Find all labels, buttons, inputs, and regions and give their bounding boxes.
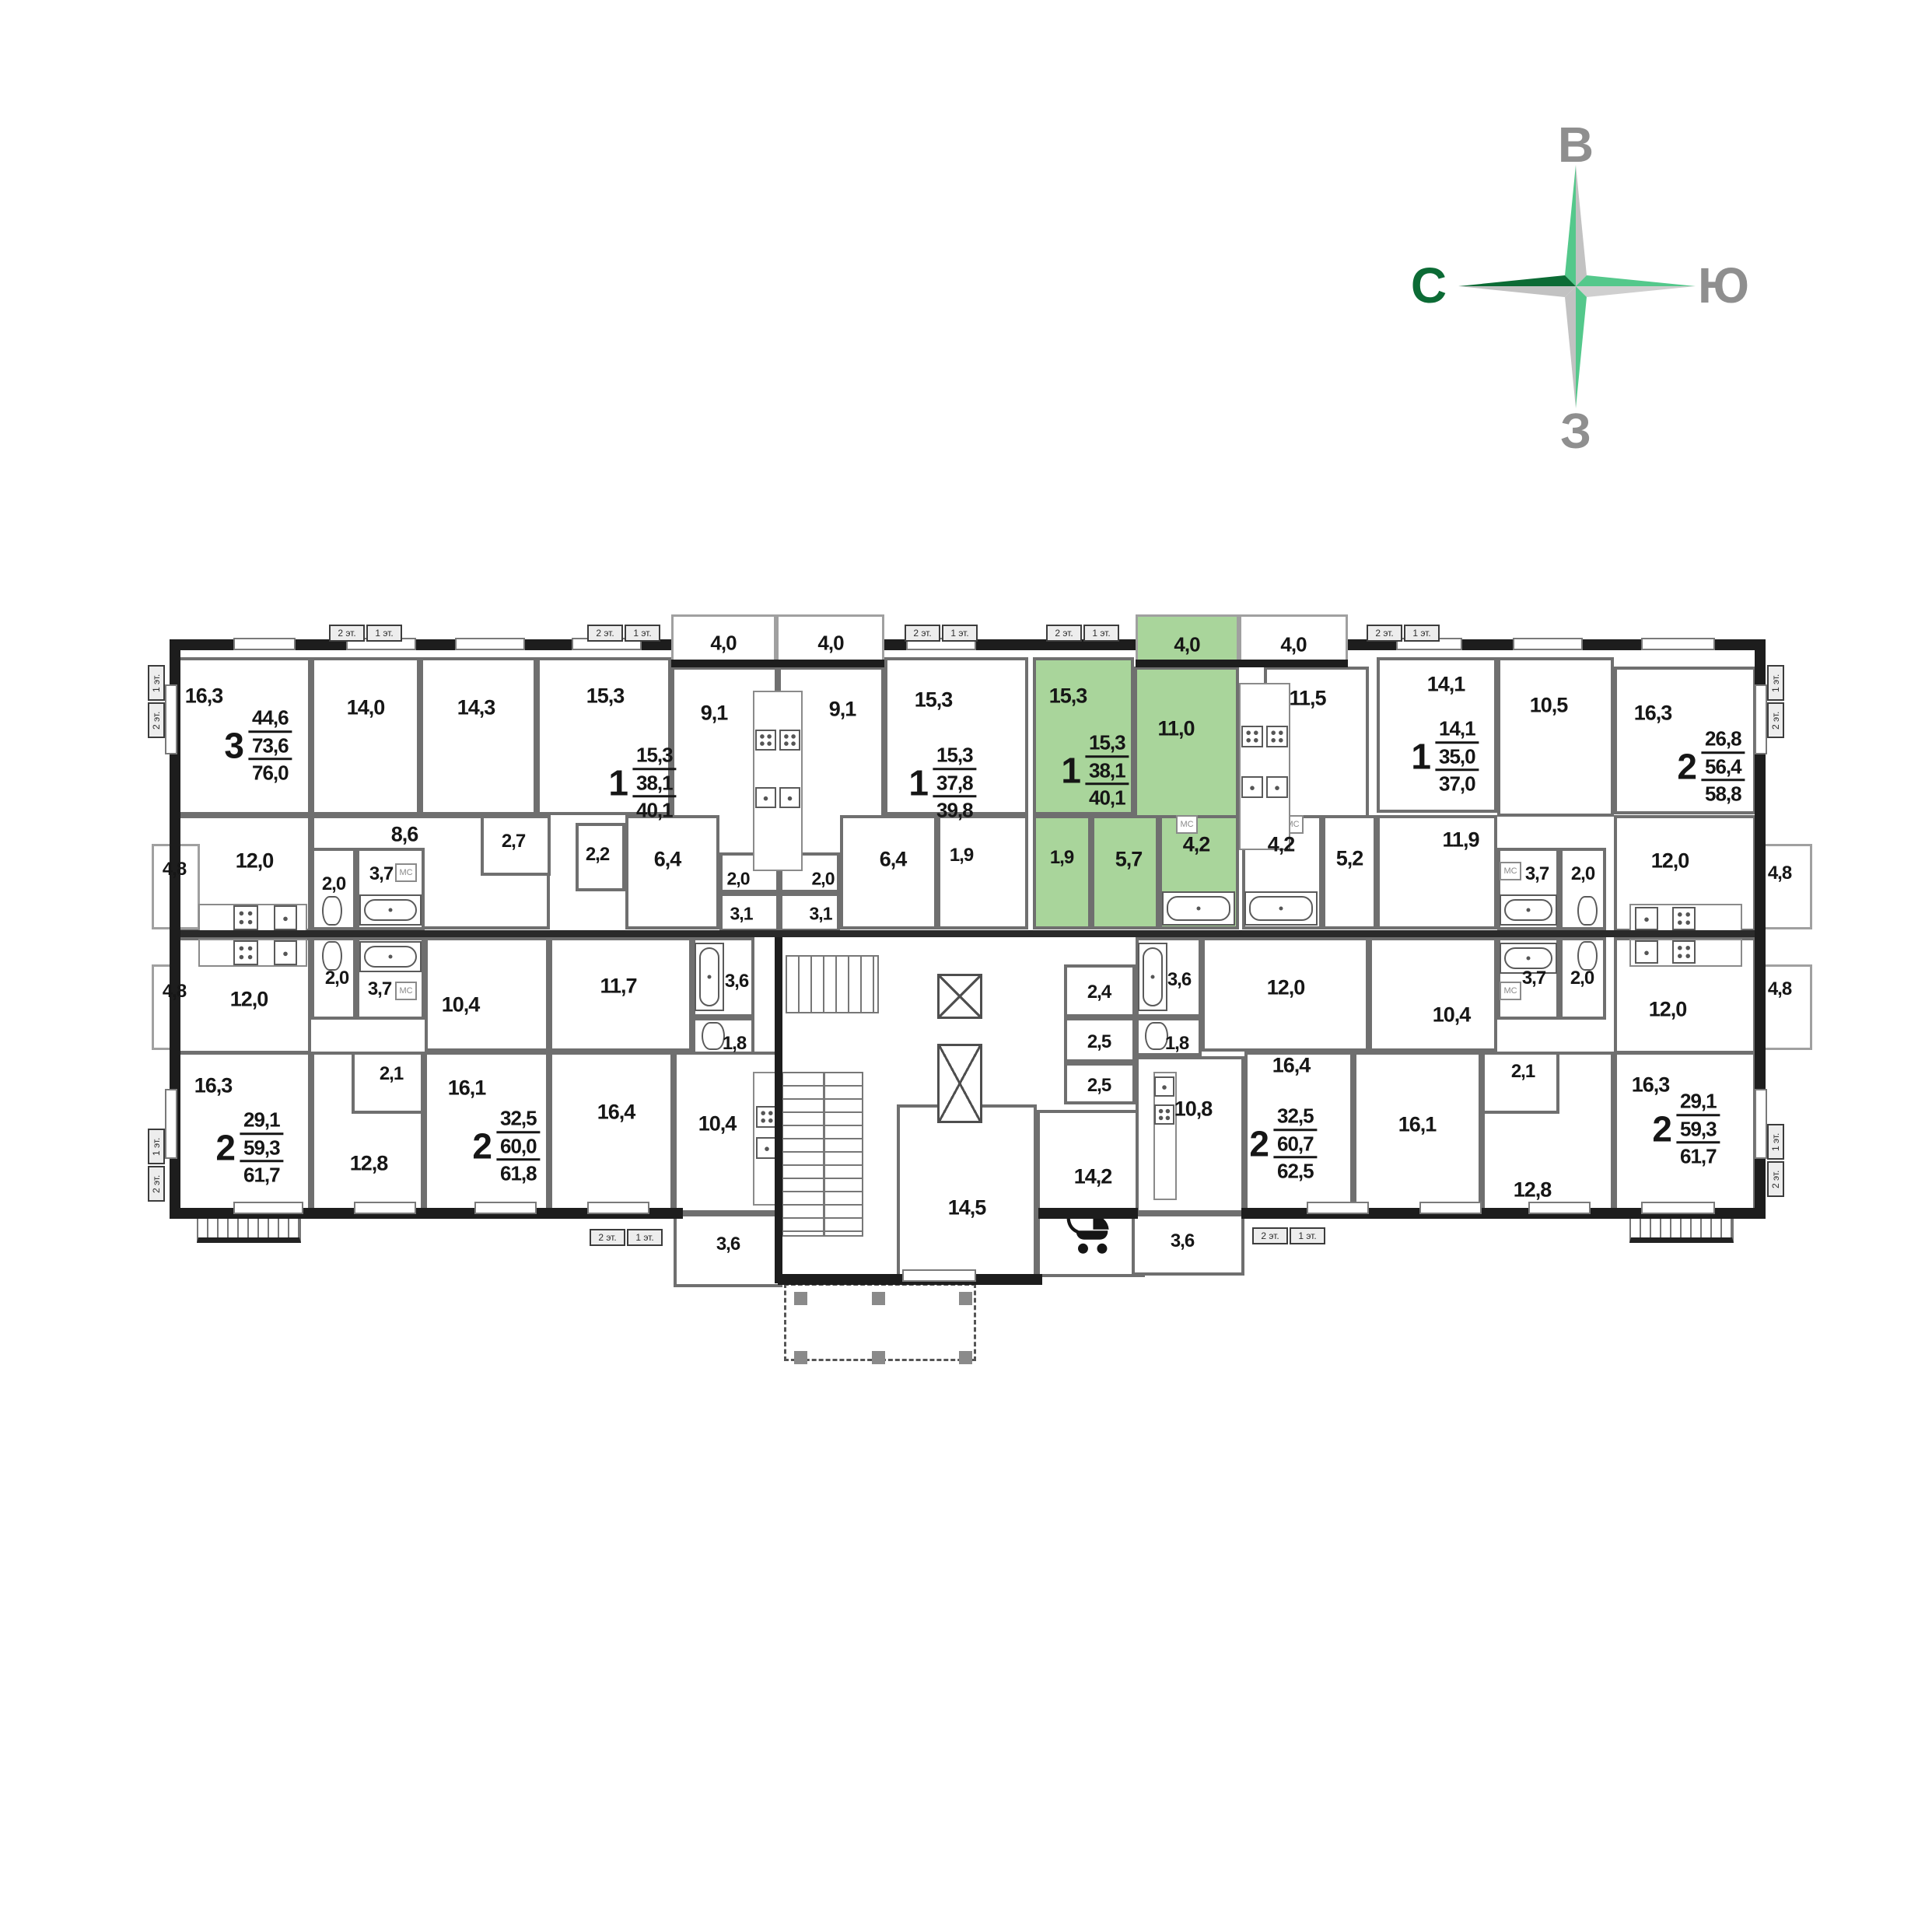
apartment-area-value: 29,1 <box>240 1107 284 1135</box>
storage-box-mc: МС <box>1500 862 1521 880</box>
sink-icon <box>274 940 297 965</box>
staircase <box>786 955 879 1013</box>
room <box>1497 657 1614 817</box>
window <box>1641 638 1715 650</box>
toilet-icon <box>322 896 342 926</box>
room-area-label: 5,2 <box>1336 847 1363 871</box>
apartment-area-value: 15,3 <box>1085 730 1129 758</box>
room-area-label: 6,4 <box>654 848 681 872</box>
room-area-label: 1,9 <box>950 845 973 866</box>
apartment-area-value: 39,8 <box>933 797 977 823</box>
room-area-label: 10,8 <box>1174 1097 1213 1122</box>
porch-column <box>872 1351 885 1364</box>
room-highlighted[interactable] <box>1033 815 1091 929</box>
room-area-label: 11,0 <box>1157 717 1194 741</box>
room-area-label: 11,5 <box>1289 687 1325 711</box>
room-area-label: 2,5 <box>1087 1031 1111 1053</box>
apartment-rooms-count: 2 <box>1677 745 1696 787</box>
floor-tag[interactable]: 1 эт. <box>627 1229 663 1246</box>
room-area-label: 3,7 <box>1525 863 1549 885</box>
room <box>897 1104 1037 1279</box>
floor-tag[interactable]: 2 эт. <box>590 1229 625 1246</box>
apartment-areas: 32,560,061,8 <box>496 1105 541 1186</box>
porch-column <box>959 1292 972 1305</box>
window <box>233 1202 303 1214</box>
apartment-rooms-count: 1 <box>908 761 928 803</box>
room-area-label: 1,8 <box>723 1033 746 1055</box>
room-area-label: 2,0 <box>325 968 348 989</box>
apartment-area-value: 40,1 <box>1085 785 1129 810</box>
floor-tag[interactable]: 2 эт. <box>1767 1161 1784 1197</box>
storage-box-mc: МС <box>395 863 417 882</box>
apartment-rooms-count: 1 <box>1411 735 1430 777</box>
floor-tag[interactable]: 2 эт. <box>587 625 623 642</box>
stove-icon <box>1241 726 1263 747</box>
room-area-label: 10,4 <box>442 993 480 1017</box>
room-area-label: 2,1 <box>1511 1061 1535 1083</box>
floorplan-canvas: В Ю З С 4,04,04,04,016,314,014,315,39,19… <box>0 0 1932 1932</box>
sink-icon <box>779 787 800 808</box>
room-area-label: 12,0 <box>1267 976 1305 1000</box>
apartment-area-value: 56,4 <box>1701 754 1745 782</box>
room-area-label: 3,6 <box>716 1234 740 1255</box>
room-area-label: 14,1 <box>1427 673 1465 697</box>
stove-icon <box>1154 1104 1174 1125</box>
apartment-area-value: 38,1 <box>632 770 677 798</box>
room-area-label: 3,1 <box>730 904 753 925</box>
apartment-areas: 15,337,839,8 <box>933 742 977 823</box>
apartment-label[interactable]: 114,135,037,0 <box>1411 716 1479 796</box>
apartment-area-value: 15,3 <box>632 742 677 770</box>
room-area-label: 2,7 <box>502 831 525 852</box>
stove-icon <box>233 905 258 930</box>
apartment-label[interactable]: 232,560,061,8 <box>472 1105 540 1186</box>
apartment-area-value: 38,1 <box>1085 758 1129 786</box>
room-area-label: 9,1 <box>701 702 728 726</box>
room <box>1322 815 1377 929</box>
room-area-label: 14,3 <box>457 696 495 720</box>
porch-column <box>794 1292 807 1305</box>
room-area-label: 3,6 <box>1167 969 1191 991</box>
apartment-area-value: 15,3 <box>933 742 977 770</box>
room-area-label: 1,9 <box>1050 847 1073 869</box>
room <box>1377 815 1497 929</box>
room-area-label: 4,2 <box>1268 833 1295 857</box>
room <box>311 657 420 815</box>
apartment-area-value: 59,3 <box>1676 1116 1720 1144</box>
toilet-icon <box>1577 941 1598 971</box>
apartment-area-value: 29,1 <box>1676 1088 1720 1116</box>
apartment-area-value: 59,3 <box>240 1135 284 1163</box>
room-area-label: 10,5 <box>1530 694 1568 718</box>
elevator-shaft <box>937 1044 982 1123</box>
room-area-label: 2,5 <box>1087 1075 1111 1097</box>
room-area-label: 12,8 <box>350 1152 388 1176</box>
apartment-areas: 14,135,037,0 <box>1435 716 1479 796</box>
apartment-label[interactable]: 344,673,676,0 <box>224 705 292 786</box>
room-area-label: 6,4 <box>880 848 907 872</box>
room-area-label: 15,3 <box>586 684 625 709</box>
room-area-label: 2,0 <box>322 873 345 895</box>
floor-tag[interactable]: 1 эт. <box>148 1129 165 1164</box>
stove-icon <box>233 940 258 965</box>
apartment-label[interactable]: 229,159,361,7 <box>1652 1088 1720 1169</box>
stove-icon <box>755 730 776 751</box>
apartment-area-value: 14,1 <box>1435 716 1479 744</box>
window <box>1755 1089 1767 1159</box>
room-highlighted[interactable] <box>1091 815 1159 929</box>
floor-tag[interactable]: 2 эт. <box>1767 702 1784 738</box>
floor-tag[interactable]: 2 эт. <box>329 625 365 642</box>
apartment-area-value: 62,5 <box>1273 1158 1318 1184</box>
apartment-rooms-count: 2 <box>472 1125 492 1167</box>
porch-column <box>872 1292 885 1305</box>
staircase <box>782 1072 863 1237</box>
toilet-icon <box>1577 896 1598 926</box>
window <box>1641 1202 1715 1214</box>
window <box>165 1089 177 1159</box>
room-area-label: 3,6 <box>725 971 748 992</box>
floor-tag[interactable]: 1 эт. <box>1767 665 1784 701</box>
room-area-label: 14,5 <box>948 1196 986 1220</box>
floor-tag[interactable]: 1 эт. <box>625 625 660 642</box>
room-area-label: 1,8 <box>1165 1033 1188 1055</box>
room-area-label: 10,4 <box>698 1112 737 1136</box>
room-area-label: 8,6 <box>391 823 418 847</box>
room-area-label: 4,2 <box>1183 833 1210 857</box>
room-area-label: 15,3 <box>915 688 953 712</box>
room-area-label: 4,0 <box>710 632 736 656</box>
bathtub-icon <box>1162 891 1235 926</box>
stove-icon <box>1672 907 1696 930</box>
room-area-label: 4,0 <box>817 632 843 656</box>
room <box>625 815 719 929</box>
sink-icon <box>1241 776 1263 798</box>
room-area-label: 16,3 <box>185 684 223 709</box>
window <box>1528 1202 1591 1214</box>
floor-tag[interactable]: 1 эт. <box>1404 625 1440 642</box>
compass-label-north: С <box>1411 257 1447 314</box>
room-area-label: 15,3 <box>1049 684 1087 709</box>
room-area-label: 11,9 <box>1442 828 1479 852</box>
sink-icon <box>755 787 776 808</box>
apartment-area-value: 61,8 <box>496 1160 541 1186</box>
apartment-area-value: 26,8 <box>1701 726 1745 754</box>
room-area-label: 4,8 <box>163 981 186 1003</box>
window <box>354 1202 416 1214</box>
room-area-label: 10,4 <box>1433 1003 1471 1027</box>
floor-tag[interactable]: 2 эт. <box>1367 625 1402 642</box>
wall <box>180 930 1755 937</box>
apartment-label[interactable]: 115,338,140,1 <box>1061 730 1129 810</box>
bathtub-icon <box>695 943 724 1011</box>
apartment-label[interactable]: 232,560,762,5 <box>1249 1103 1317 1184</box>
room-area-label: 3,7 <box>369 863 393 885</box>
bathtub-icon <box>1244 891 1318 926</box>
floor-tag[interactable]: 1 эт. <box>1767 1124 1784 1160</box>
apartment-areas: 29,159,361,7 <box>1676 1088 1720 1169</box>
room-area-label: 12,0 <box>1651 849 1689 873</box>
storage-box-mc: МС <box>395 982 417 1000</box>
room-area-label: 2,1 <box>380 1063 403 1085</box>
bathtub-icon <box>359 894 422 926</box>
floor-tag[interactable]: 2 эт. <box>148 1166 165 1202</box>
room-area-label: 16,3 <box>1634 702 1672 726</box>
apartment-area-value: 40,1 <box>632 797 677 823</box>
apartment-area-value: 44,6 <box>248 705 292 733</box>
compass-label-south: Ю <box>1698 257 1749 314</box>
apartment-areas: 32,560,762,5 <box>1273 1103 1318 1184</box>
apartment-label[interactable]: 115,337,839,8 <box>908 742 976 823</box>
window <box>474 1202 537 1214</box>
floor-tag[interactable]: 1 эт. <box>148 665 165 701</box>
toilet-icon <box>702 1022 725 1050</box>
window <box>1755 684 1767 754</box>
room-area-label: 14,2 <box>1074 1165 1112 1189</box>
room <box>1136 1056 1244 1213</box>
apartment-areas: 29,159,361,7 <box>240 1107 284 1188</box>
room-area-label: 16,1 <box>1398 1113 1437 1137</box>
floor-tag[interactable]: 1 эт. <box>1083 625 1119 642</box>
room-area-label: 2,0 <box>1571 863 1594 885</box>
apartment-areas: 44,673,676,0 <box>248 705 292 786</box>
room-area-label: 2,0 <box>727 869 750 890</box>
room <box>420 657 537 815</box>
room-area-label: 12,0 <box>1649 998 1687 1022</box>
window <box>1513 638 1583 650</box>
apartment-label[interactable]: 226,856,458,8 <box>1677 726 1745 807</box>
apartment-area-value: 61,7 <box>240 1162 284 1188</box>
kitchen-counter <box>753 691 803 871</box>
floor-tag[interactable]: 2 эт. <box>148 702 165 738</box>
room-area-label: 16,3 <box>194 1074 233 1098</box>
room-area-label: 4,0 <box>1280 633 1306 657</box>
room-area-label: 5,7 <box>1115 848 1143 872</box>
bathtub-icon <box>1138 943 1167 1011</box>
apartment-areas: 26,856,458,8 <box>1701 726 1745 807</box>
porch-outline <box>784 1283 976 1361</box>
apartment-area-value: 32,5 <box>496 1105 541 1133</box>
apartment-area-value: 60,7 <box>1273 1131 1318 1159</box>
floor-tag[interactable]: 1 эт. <box>1290 1227 1325 1244</box>
bathtub-icon <box>359 941 422 972</box>
room-area-label: 4,0 <box>1174 633 1199 657</box>
room-area-label: 2,4 <box>1087 982 1111 1003</box>
wall <box>671 660 884 667</box>
stove-icon <box>779 730 800 751</box>
room-area-label: 12,8 <box>1514 1178 1552 1202</box>
room-area-label: 3,7 <box>1522 968 1545 989</box>
room-area-label: 11,7 <box>600 975 636 999</box>
sink-icon <box>1635 940 1658 964</box>
wall <box>1038 1208 1138 1219</box>
apartment-areas: 15,338,140,1 <box>1085 730 1129 810</box>
room-area-label: 16,1 <box>448 1076 486 1101</box>
apartment-area-value: 61,7 <box>1676 1143 1720 1169</box>
apartment-label[interactable]: 229,159,361,7 <box>215 1107 283 1188</box>
window <box>233 638 296 650</box>
apartment-rooms-count: 2 <box>215 1126 235 1168</box>
room-area-label: 12,0 <box>236 849 274 873</box>
room <box>840 815 937 929</box>
room-area-label: 4,8 <box>1768 863 1791 884</box>
apartment-rooms-count: 2 <box>1249 1122 1269 1164</box>
room-area-label: 16,4 <box>1272 1054 1311 1078</box>
room-area-label: 14,0 <box>347 696 385 720</box>
apartment-area-value: 76,0 <box>248 760 292 786</box>
room-area-label: 2,0 <box>1570 968 1594 989</box>
apartment-area-value: 58,8 <box>1701 781 1745 807</box>
floor-tag[interactable]: 2 эт. <box>1046 625 1082 642</box>
apartment-area-value: 35,0 <box>1435 744 1479 772</box>
wall <box>775 937 782 1283</box>
window <box>165 684 177 754</box>
floor-tag[interactable]: 1 эт. <box>942 625 978 642</box>
window <box>455 638 525 650</box>
room-area-label: 3,1 <box>810 904 832 925</box>
storage-box-mc: МС <box>1176 815 1198 834</box>
bathtub-icon <box>1500 894 1557 926</box>
room-area-label: 2,0 <box>812 869 835 890</box>
room <box>1369 937 1497 1052</box>
sink-icon <box>274 905 297 930</box>
floor-tag[interactable]: 2 эт. <box>905 625 940 642</box>
room-area-label: 3,7 <box>368 978 391 1000</box>
apartment-rooms-count: 3 <box>224 724 243 766</box>
room-area-label: 2,2 <box>586 844 609 866</box>
window <box>1307 1202 1369 1214</box>
room-area-label: 12,0 <box>230 988 268 1012</box>
compass-label-east: В <box>1558 116 1594 173</box>
window <box>902 1269 976 1282</box>
window <box>1419 1202 1482 1214</box>
apartment-area-value: 32,5 <box>1273 1103 1318 1131</box>
sink-icon <box>1635 907 1658 930</box>
apartment-rooms-count: 1 <box>608 761 628 803</box>
wall <box>1136 660 1348 667</box>
apartment-area-value: 37,0 <box>1435 771 1479 796</box>
stove-icon <box>1266 726 1288 747</box>
apartment-area-value: 60,0 <box>496 1133 541 1161</box>
room <box>937 815 1028 929</box>
room-area-label: 4,8 <box>1768 978 1791 1000</box>
apartment-area-value: 73,6 <box>248 733 292 761</box>
window <box>587 1202 649 1214</box>
room-area-label: 3,6 <box>1171 1230 1194 1252</box>
room <box>549 1052 674 1213</box>
kitchen-counter <box>1239 683 1290 850</box>
apartment-rooms-count: 1 <box>1061 749 1080 791</box>
room-area-label: 16,4 <box>597 1101 635 1125</box>
compass-label-west: З <box>1560 402 1591 460</box>
apartment-rooms-count: 2 <box>1652 1108 1671 1150</box>
sink-icon <box>1266 776 1288 798</box>
floor-tag[interactable]: 1 эт. <box>366 625 402 642</box>
toilet-icon <box>322 941 342 971</box>
floor-tag[interactable]: 2 эт. <box>1252 1227 1288 1244</box>
apartment-areas: 15,338,140,1 <box>632 742 677 823</box>
porch-column <box>794 1351 807 1364</box>
storage-box-mc: МС <box>1500 982 1521 1000</box>
stove-icon <box>1672 940 1696 964</box>
room-area-label: 4,8 <box>163 859 186 880</box>
room-area-label: 9,1 <box>829 698 856 722</box>
sink-icon <box>1154 1076 1174 1097</box>
apartment-label[interactable]: 115,338,140,1 <box>608 742 676 823</box>
porch-column <box>959 1351 972 1364</box>
elevator-shaft <box>937 974 982 1019</box>
apartment-area-value: 37,8 <box>933 770 977 798</box>
